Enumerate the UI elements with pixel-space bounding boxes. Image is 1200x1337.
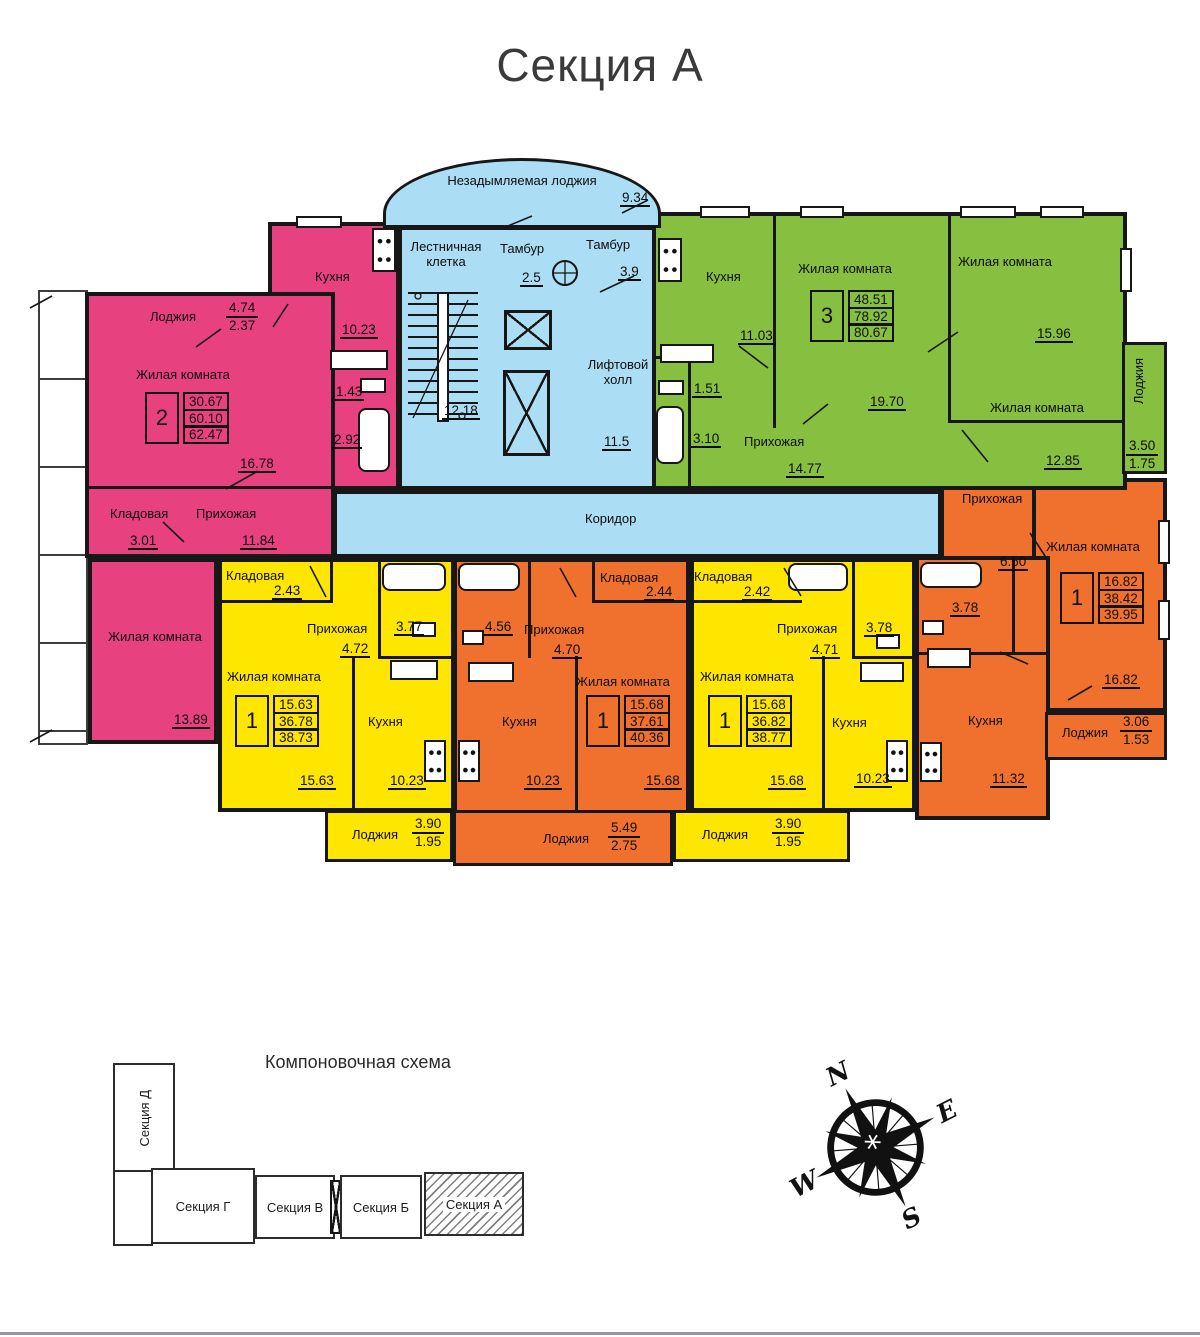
pink-living2-label: Жилая комната [108, 630, 202, 645]
orange-mid-bath-area: 4.56 [483, 619, 513, 636]
yellow-right-storage-area: 2.42 [742, 584, 772, 601]
orange-mid-loggia-areas: 5.49 2.75 [608, 820, 640, 853]
scheme-section-d-label: Секция Д [137, 1090, 152, 1146]
yellow-left-bath-area: 3.77 [394, 619, 424, 636]
wall [773, 216, 776, 428]
yellow-left-area-total: 38.73 [273, 728, 319, 747]
washer-icon [390, 660, 438, 680]
toilet-icon [658, 380, 684, 395]
green-bath-area: 3.10 [691, 431, 721, 448]
yellow-left-living-label: Жилая комната [227, 670, 321, 685]
washer-icon [660, 344, 714, 363]
pink-wc-area: 1.43 [334, 384, 364, 401]
orange-right-hall-label: Прихожая [962, 492, 1022, 507]
bathtub-icon [382, 563, 446, 591]
wall [330, 558, 333, 603]
orange-right-loggia-area-den: 1.53 [1120, 732, 1152, 748]
stairwell-label: Лестничная клетка [402, 240, 490, 269]
yellow-left-loggia-area-num: 3.90 [412, 816, 444, 834]
scheme-section-a: Секция А [424, 1172, 524, 1236]
washer-icon [468, 662, 514, 682]
orange-right-loggia-areas: 3.06 1.53 [1120, 714, 1152, 747]
toilet-icon [922, 620, 944, 635]
compass-east-label: E [930, 1093, 962, 1129]
pink-room-count: 2 [145, 392, 179, 444]
orange-mid-hall-area: 4.70 [552, 642, 582, 659]
compass-south-label: S [896, 1200, 926, 1235]
window [1040, 206, 1084, 218]
yellow-left-living-area: 15.63 [298, 773, 336, 790]
bathtub-icon [358, 408, 390, 472]
bathtub-icon [656, 406, 684, 464]
yellow-right-kitchen-label: Кухня [832, 716, 867, 731]
green-loggia-area-num: 3.50 [1126, 438, 1158, 456]
orange-right-hall-area: 6.50 [998, 554, 1028, 571]
orange-right-loggia-label: Лоджия [1062, 726, 1108, 741]
green-loggia-area-den: 1.75 [1126, 456, 1158, 472]
pink-apartment-info: 2 30.67 60.10 62.47 [145, 392, 229, 444]
yellow-right-kitchen-area: 10.23 [854, 771, 892, 788]
orange-mid-room-count: 1 [586, 695, 620, 747]
corridor-label: Коридор [585, 512, 636, 527]
orange-mid-kitchen-label: Кухня [502, 715, 537, 730]
orange-right-loggia-area-num: 3.06 [1120, 714, 1152, 732]
window [1158, 600, 1170, 640]
floor-plan-sheet: Секция А [0, 0, 1200, 1337]
orange-mid-living-label: Жилая комната [576, 675, 670, 690]
compass-rose: * N E S W [778, 1050, 973, 1245]
yellow-right-living-area: 15.68 [768, 773, 806, 790]
orange-right-living-label: Жилая комната [1046, 540, 1140, 555]
corridor-block [333, 490, 942, 558]
yellow-left-room-count: 1 [235, 695, 269, 747]
green-room-count: 3 [810, 290, 844, 342]
wall [88, 486, 335, 489]
orange-right-room-count: 1 [1060, 572, 1094, 624]
yellow-left-loggia-area-den: 1.95 [412, 834, 444, 850]
lift-hall-label: Лифтовой холл [575, 358, 661, 387]
wall [592, 558, 595, 603]
scheme-section-v: Секция В [255, 1175, 335, 1239]
green-living3-area: 12.85 [1044, 453, 1082, 470]
stove-icon [424, 740, 446, 782]
yellow-right-apartment-info: 1 15.68 36.82 38.77 [708, 695, 792, 747]
pink-loggia-label: Лоджия [150, 310, 196, 325]
wall [528, 558, 531, 658]
green-loggia-label: Лоджия [1132, 358, 1147, 404]
stairwell-area: 12.18 [442, 403, 480, 420]
yellow-left-kitchen-area: 10.23 [388, 773, 426, 790]
elevator-shaft-small [504, 310, 552, 350]
yellow-left-loggia-areas: 3.90 1.95 [412, 816, 444, 849]
scheme-section-a-label: Секция А [443, 1197, 505, 1212]
window [1158, 520, 1170, 564]
wall [1012, 558, 1015, 653]
orange-right-kitchen-area: 11.32 [990, 771, 1027, 788]
scheme-section-d: Секция Д [113, 1063, 175, 1173]
yellow-left-loggia-label: Лоджия [352, 828, 398, 843]
wall [822, 656, 825, 810]
scheme-section-b-label: Секция Б [353, 1200, 409, 1215]
pink-loggia-area-num: 4.74 [226, 300, 258, 318]
scheme-section-v-label: Секция В [267, 1200, 323, 1215]
scheme-section-b: Секция Б [340, 1175, 422, 1239]
scheme-title: Компоновочная схема [265, 1052, 451, 1073]
pink-kitchen-area: 10.23 [340, 322, 378, 339]
pink-living1-label: Жилая комната [136, 368, 230, 383]
yellow-right-bath-area: 3.78 [864, 620, 894, 637]
tambur2-area: 3.9 [618, 264, 641, 281]
yellow-right-hall-area: 4.71 [810, 642, 840, 659]
green-kitchen-area: 11.03 [738, 328, 775, 345]
green-hall-label: Прихожая [744, 435, 804, 450]
wall [218, 600, 332, 603]
pink-hall-area: 11.84 [240, 533, 277, 550]
wall [352, 656, 355, 810]
yellow-left-hall-label: Прихожая [307, 622, 367, 637]
smoke-free-loggia-area: 9.34 [620, 190, 650, 207]
elevator-shaft-large [503, 370, 550, 456]
bathtub-icon [788, 563, 848, 591]
compass-north-label: N [820, 1054, 856, 1092]
pink-living2-area: 13.89 [172, 712, 210, 729]
green-living1-label: Жилая комната [798, 262, 892, 277]
yellow-right-storage-label: Кладовая [694, 570, 752, 585]
scheme-section-g: Секция Г [151, 1168, 255, 1244]
orange-mid-loggia-area-den: 2.75 [608, 838, 640, 854]
scheme-section-stub [113, 1170, 153, 1246]
wall [852, 558, 855, 658]
wall [948, 420, 1124, 423]
bathtub-icon [920, 562, 982, 588]
yellow-right-loggia-area-den: 1.95 [772, 834, 804, 850]
stove-icon [920, 742, 942, 782]
page-title: Секция А [0, 38, 1200, 92]
green-loggia-areas: 3.50 1.75 [1126, 438, 1158, 471]
window [1120, 248, 1132, 292]
orange-right-apartment-info: 1 16.82 38.42 39.95 [1060, 572, 1144, 624]
yellow-left-hall-area: 4.72 [340, 641, 370, 658]
stove-icon [372, 228, 396, 272]
apartment-green-block [652, 212, 1127, 490]
sheet-bottom-rule [0, 1332, 1200, 1335]
window [700, 206, 750, 218]
orange-mid-loggia-area-num: 5.49 [608, 820, 640, 838]
tambur1-area: 2.5 [520, 270, 543, 287]
tambur2-label: Тамбур [586, 238, 630, 253]
pink-loggia-area-den: 2.37 [226, 318, 258, 334]
green-kitchen-label: Кухня [706, 270, 741, 285]
tambur1-label: Тамбур [500, 242, 544, 257]
yellow-right-loggia-areas: 3.90 1.95 [772, 816, 804, 849]
green-wc-area: 1.51 [692, 381, 722, 398]
green-living3-label: Жилая комната [990, 401, 1084, 416]
orange-right-bath-area: 3.78 [950, 600, 980, 617]
washer-icon [927, 648, 971, 668]
window [296, 216, 342, 228]
green-area-total: 80.67 [848, 323, 894, 342]
orange-right-kitchen-label: Кухня [968, 714, 1003, 729]
stove-icon [458, 740, 480, 782]
orange-mid-living-area: 15.68 [644, 773, 682, 790]
pink-living1-area: 16.78 [238, 456, 276, 473]
orange-right-area-total: 39.95 [1098, 605, 1144, 624]
pink-bath-area: 2.92 [332, 432, 362, 449]
window [960, 206, 1016, 218]
yellow-right-loggia-label: Лоджия [702, 828, 748, 843]
green-living2-label: Жилая комната [958, 255, 1052, 270]
pink-kitchen-label: Кухня [315, 270, 350, 285]
orange-mid-loggia-label: Лоджия [543, 832, 589, 847]
orange-right-living-area: 16.82 [1102, 672, 1140, 689]
green-living1-area: 19.70 [868, 394, 906, 411]
green-living2-area: 15.96 [1035, 326, 1073, 343]
stove-icon [658, 238, 682, 282]
wall [852, 656, 914, 659]
window [800, 206, 844, 218]
yellow-left-apartment-info: 1 15.63 36.78 38.73 [235, 695, 319, 747]
smoke-free-loggia-label: Незадымляемая лоджия [400, 174, 644, 189]
bathtub-icon [458, 563, 520, 591]
wall [378, 558, 381, 658]
pink-loggia-areas: 4.74 2.37 [226, 300, 258, 333]
orange-mid-area-total: 40.36 [624, 728, 670, 747]
pink-storage-area: 3.01 [128, 533, 158, 550]
compass-west-label: W [785, 1163, 826, 1204]
yellow-right-area-total: 38.77 [746, 728, 792, 747]
wall [688, 356, 691, 486]
lift-hall-area: 11.5 [602, 434, 631, 451]
toilet-icon [462, 630, 484, 645]
pink-hall-label: Прихожая [196, 507, 256, 522]
green-apartment-info: 3 48.51 78.92 80.67 [810, 290, 894, 342]
orange-mid-kitchen-area: 10.23 [524, 773, 562, 790]
yellow-right-loggia-block [673, 810, 850, 862]
orange-mid-storage-area: 2.44 [644, 584, 674, 601]
yellow-left-storage-area: 2.43 [272, 583, 302, 600]
washer-icon [330, 350, 388, 370]
scheme-section-g-label: Секция Г [176, 1199, 231, 1214]
yellow-right-hall-label: Прихожая [777, 622, 837, 637]
orange-mid-apartment-info: 1 15.68 37.61 40.36 [586, 695, 670, 747]
yellow-right-loggia-area-num: 3.90 [772, 816, 804, 834]
wall [948, 216, 951, 422]
green-hall-area: 14.77 [786, 461, 824, 478]
pink-area-total: 62.47 [183, 425, 229, 444]
yellow-left-storage-label: Кладовая [226, 569, 284, 584]
yellow-right-living-label: Жилая комната [700, 670, 794, 685]
yellow-right-room-count: 1 [708, 695, 742, 747]
wall [378, 656, 453, 659]
washer-icon [860, 662, 904, 682]
glazing-strip-left [38, 290, 88, 745]
pink-storage-label: Кладовая [110, 507, 168, 522]
orange-mid-hall-label: Прихожая [524, 623, 584, 638]
yellow-left-kitchen-label: Кухня [368, 715, 403, 730]
